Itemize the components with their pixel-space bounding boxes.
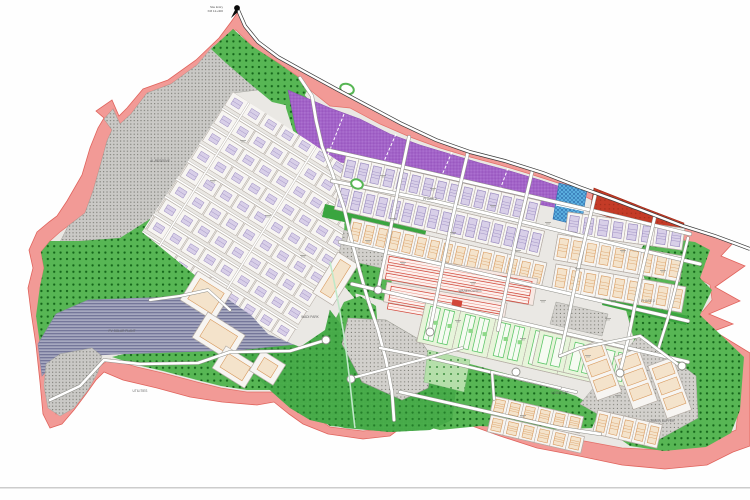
svg-text:PHASE 2: PHASE 2	[423, 197, 437, 201]
svg-text:WAREHOUSES: WAREHOUSES	[459, 289, 482, 293]
svg-text:WADI PARK: WADI PARK	[301, 315, 319, 319]
svg-text:LOGISTICS: LOGISTICS	[551, 391, 568, 395]
svg-text:PV SOLAR PLANT: PV SOLAR PLANT	[108, 329, 135, 333]
svg-text:AL RESERVE: AL RESERVE	[150, 159, 170, 163]
svg-text:KM 12+400: KM 12+400	[208, 9, 224, 13]
svg-text:UTILITIES: UTILITIES	[133, 389, 148, 393]
svg-text:PHASE 3: PHASE 3	[641, 299, 655, 303]
svg-text:GREEN BUFFER: GREEN BUFFER	[650, 419, 676, 423]
